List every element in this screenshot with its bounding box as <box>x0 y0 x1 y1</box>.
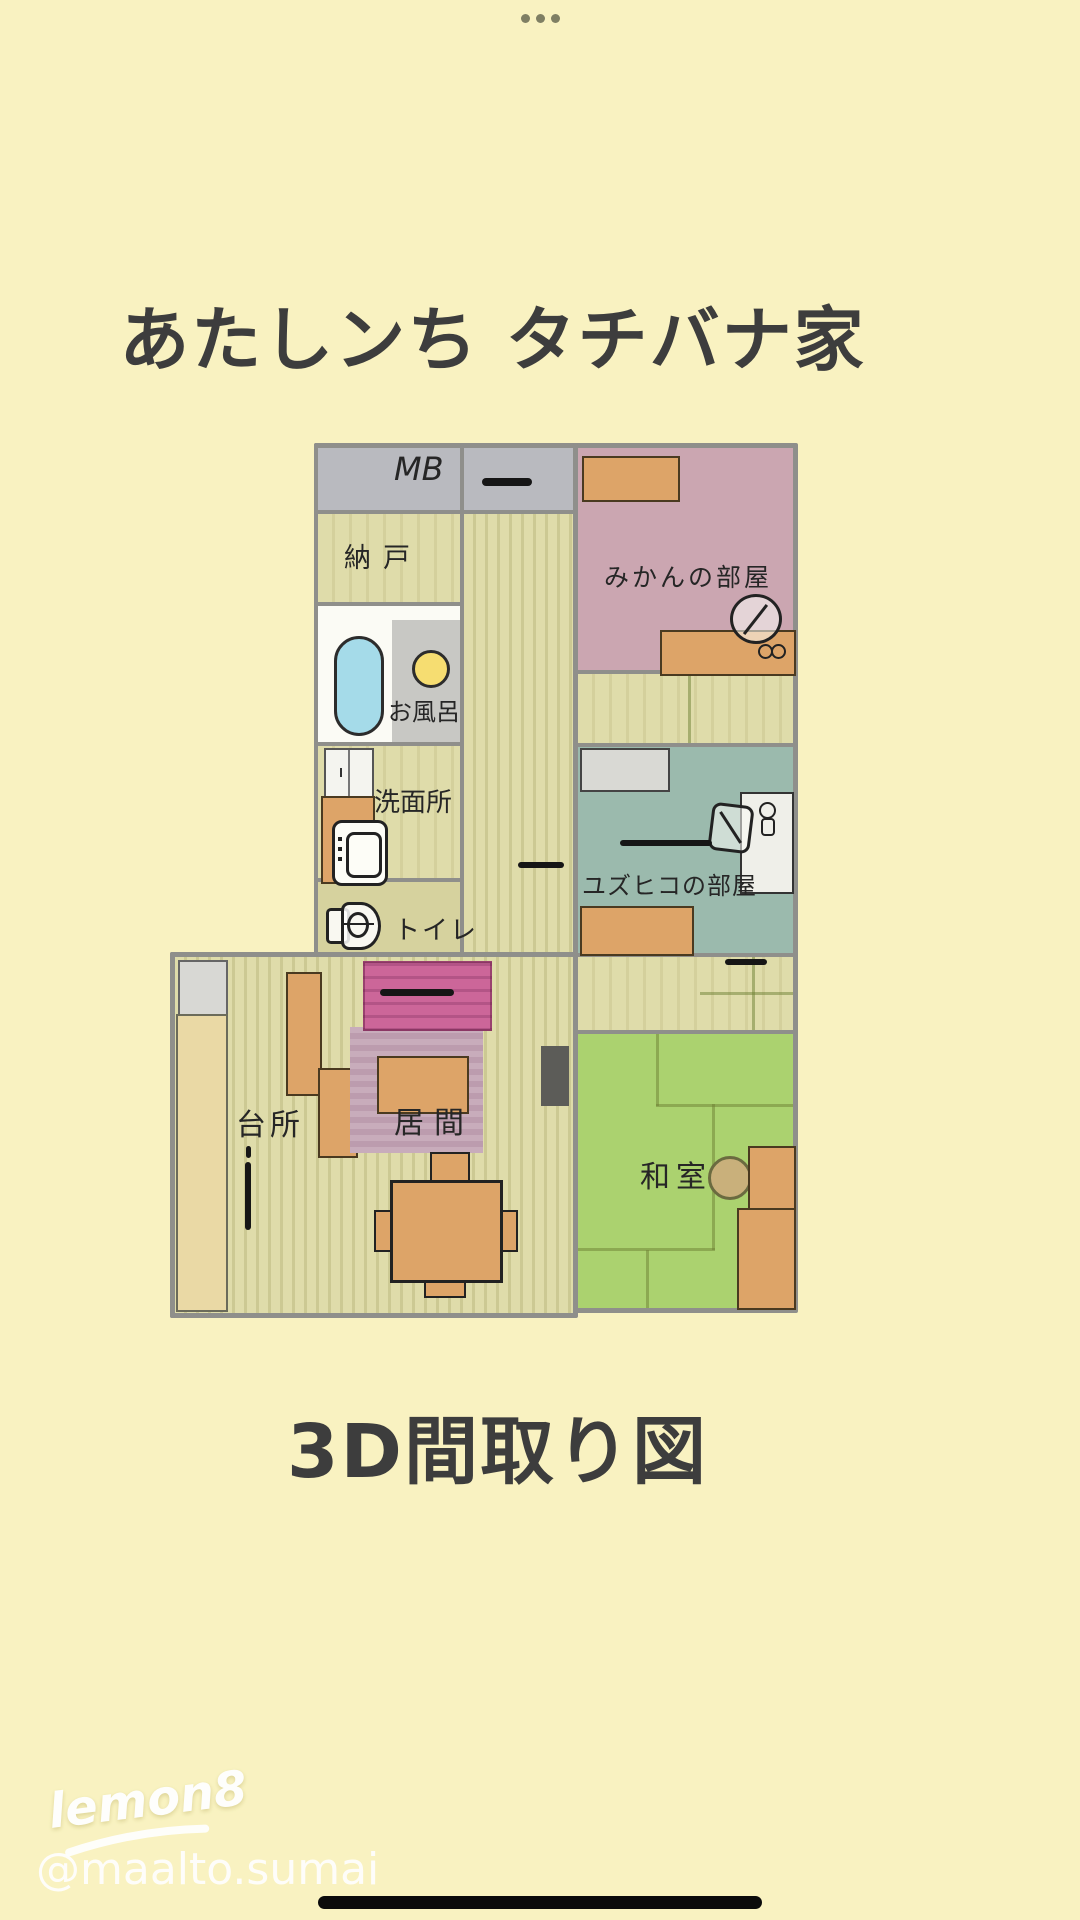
round-table-drawing <box>708 1156 752 1200</box>
yuzu-bed <box>580 906 694 956</box>
caption-3d-floorplan: 3D間取り図 <box>0 1392 995 1499</box>
mb-door-mark <box>482 478 532 486</box>
toilet-line <box>344 923 374 925</box>
wall <box>314 742 462 746</box>
toilet-seat <box>347 912 369 938</box>
yuzu-shelf <box>580 748 670 792</box>
step-mark <box>518 862 564 868</box>
label-living: 居間 <box>394 1098 474 1142</box>
tatami-line <box>656 1034 659 1106</box>
bathtub-drawing <box>334 636 384 736</box>
desk-item <box>759 802 776 819</box>
label-nando: 納戸 <box>344 536 422 575</box>
label-toilet: トイレ <box>394 910 478 947</box>
wash-basin-drawing <box>412 650 450 688</box>
cabinet-handle <box>340 768 342 777</box>
knife-drawing <box>245 1162 251 1230</box>
wall <box>314 510 575 514</box>
wall <box>314 443 797 448</box>
home-indicator[interactable] <box>318 1896 762 1909</box>
cabinet-door-line <box>348 750 350 796</box>
wall <box>170 952 577 957</box>
knife-drawing <box>246 1146 251 1158</box>
washing-machine-drawing <box>332 820 388 886</box>
desk-item <box>771 644 786 659</box>
label-bath: お風呂 <box>388 692 460 727</box>
label-kitchen: 台所 <box>236 1100 304 1144</box>
washer-buttons <box>338 837 342 863</box>
tatami-line <box>752 957 755 1030</box>
tatami-line <box>646 1250 649 1308</box>
toilet-drawing <box>326 900 380 948</box>
label-washroom: 洗面所 <box>374 782 452 819</box>
kitchen-counter <box>176 1014 228 1312</box>
wall <box>575 743 797 747</box>
wall <box>460 445 464 955</box>
tv-screen-line <box>380 989 454 996</box>
label-mikan-room: みかんの部屋 <box>604 558 772 594</box>
mb-meter-box-area <box>318 447 573 511</box>
label-mb: MB <box>394 450 444 488</box>
tatami-line <box>656 1104 793 1107</box>
hall-strip-1 <box>578 674 793 743</box>
floor-plan: MB 納戸 お風呂 洗面所 トイレ みかんの部屋 ユズヒコの部屋 和室 台所 居… <box>0 0 1080 1920</box>
mikan-shelf <box>582 456 680 502</box>
username-watermark: @maalto.sumai <box>36 1844 379 1895</box>
tatami-line <box>700 992 793 995</box>
mikan-desk <box>660 630 796 676</box>
yuzu-desk-line <box>620 840 712 846</box>
wall <box>575 1030 797 1034</box>
dining-table <box>390 1180 503 1283</box>
step-mark <box>725 959 767 965</box>
washer-door <box>346 832 382 878</box>
washitsu-chest <box>737 1208 796 1310</box>
mikan-chair-drawing <box>730 594 782 644</box>
wall <box>170 1313 577 1318</box>
washroom-cabinet <box>324 748 374 798</box>
wall <box>170 952 175 1318</box>
tv-drawing <box>541 1046 569 1106</box>
wall <box>314 443 318 957</box>
lemon8-post-screenshot: あたしンち タチバナ家 <box>0 0 1080 1920</box>
fridge-drawing <box>178 960 228 1016</box>
desk-item <box>761 818 775 836</box>
label-yuzuhiko-room: ユズヒコの部屋 <box>582 866 757 901</box>
washitsu-chest <box>748 1146 796 1212</box>
wall <box>573 443 578 1318</box>
label-washitsu: 和室 <box>640 1152 712 1196</box>
wall <box>314 602 462 606</box>
tv-stand-drawing <box>363 961 492 1031</box>
yuzu-chair-drawing <box>707 802 755 855</box>
kitchen-cabinet <box>286 972 322 1096</box>
tatami-line <box>688 674 691 743</box>
corridor <box>464 514 573 954</box>
